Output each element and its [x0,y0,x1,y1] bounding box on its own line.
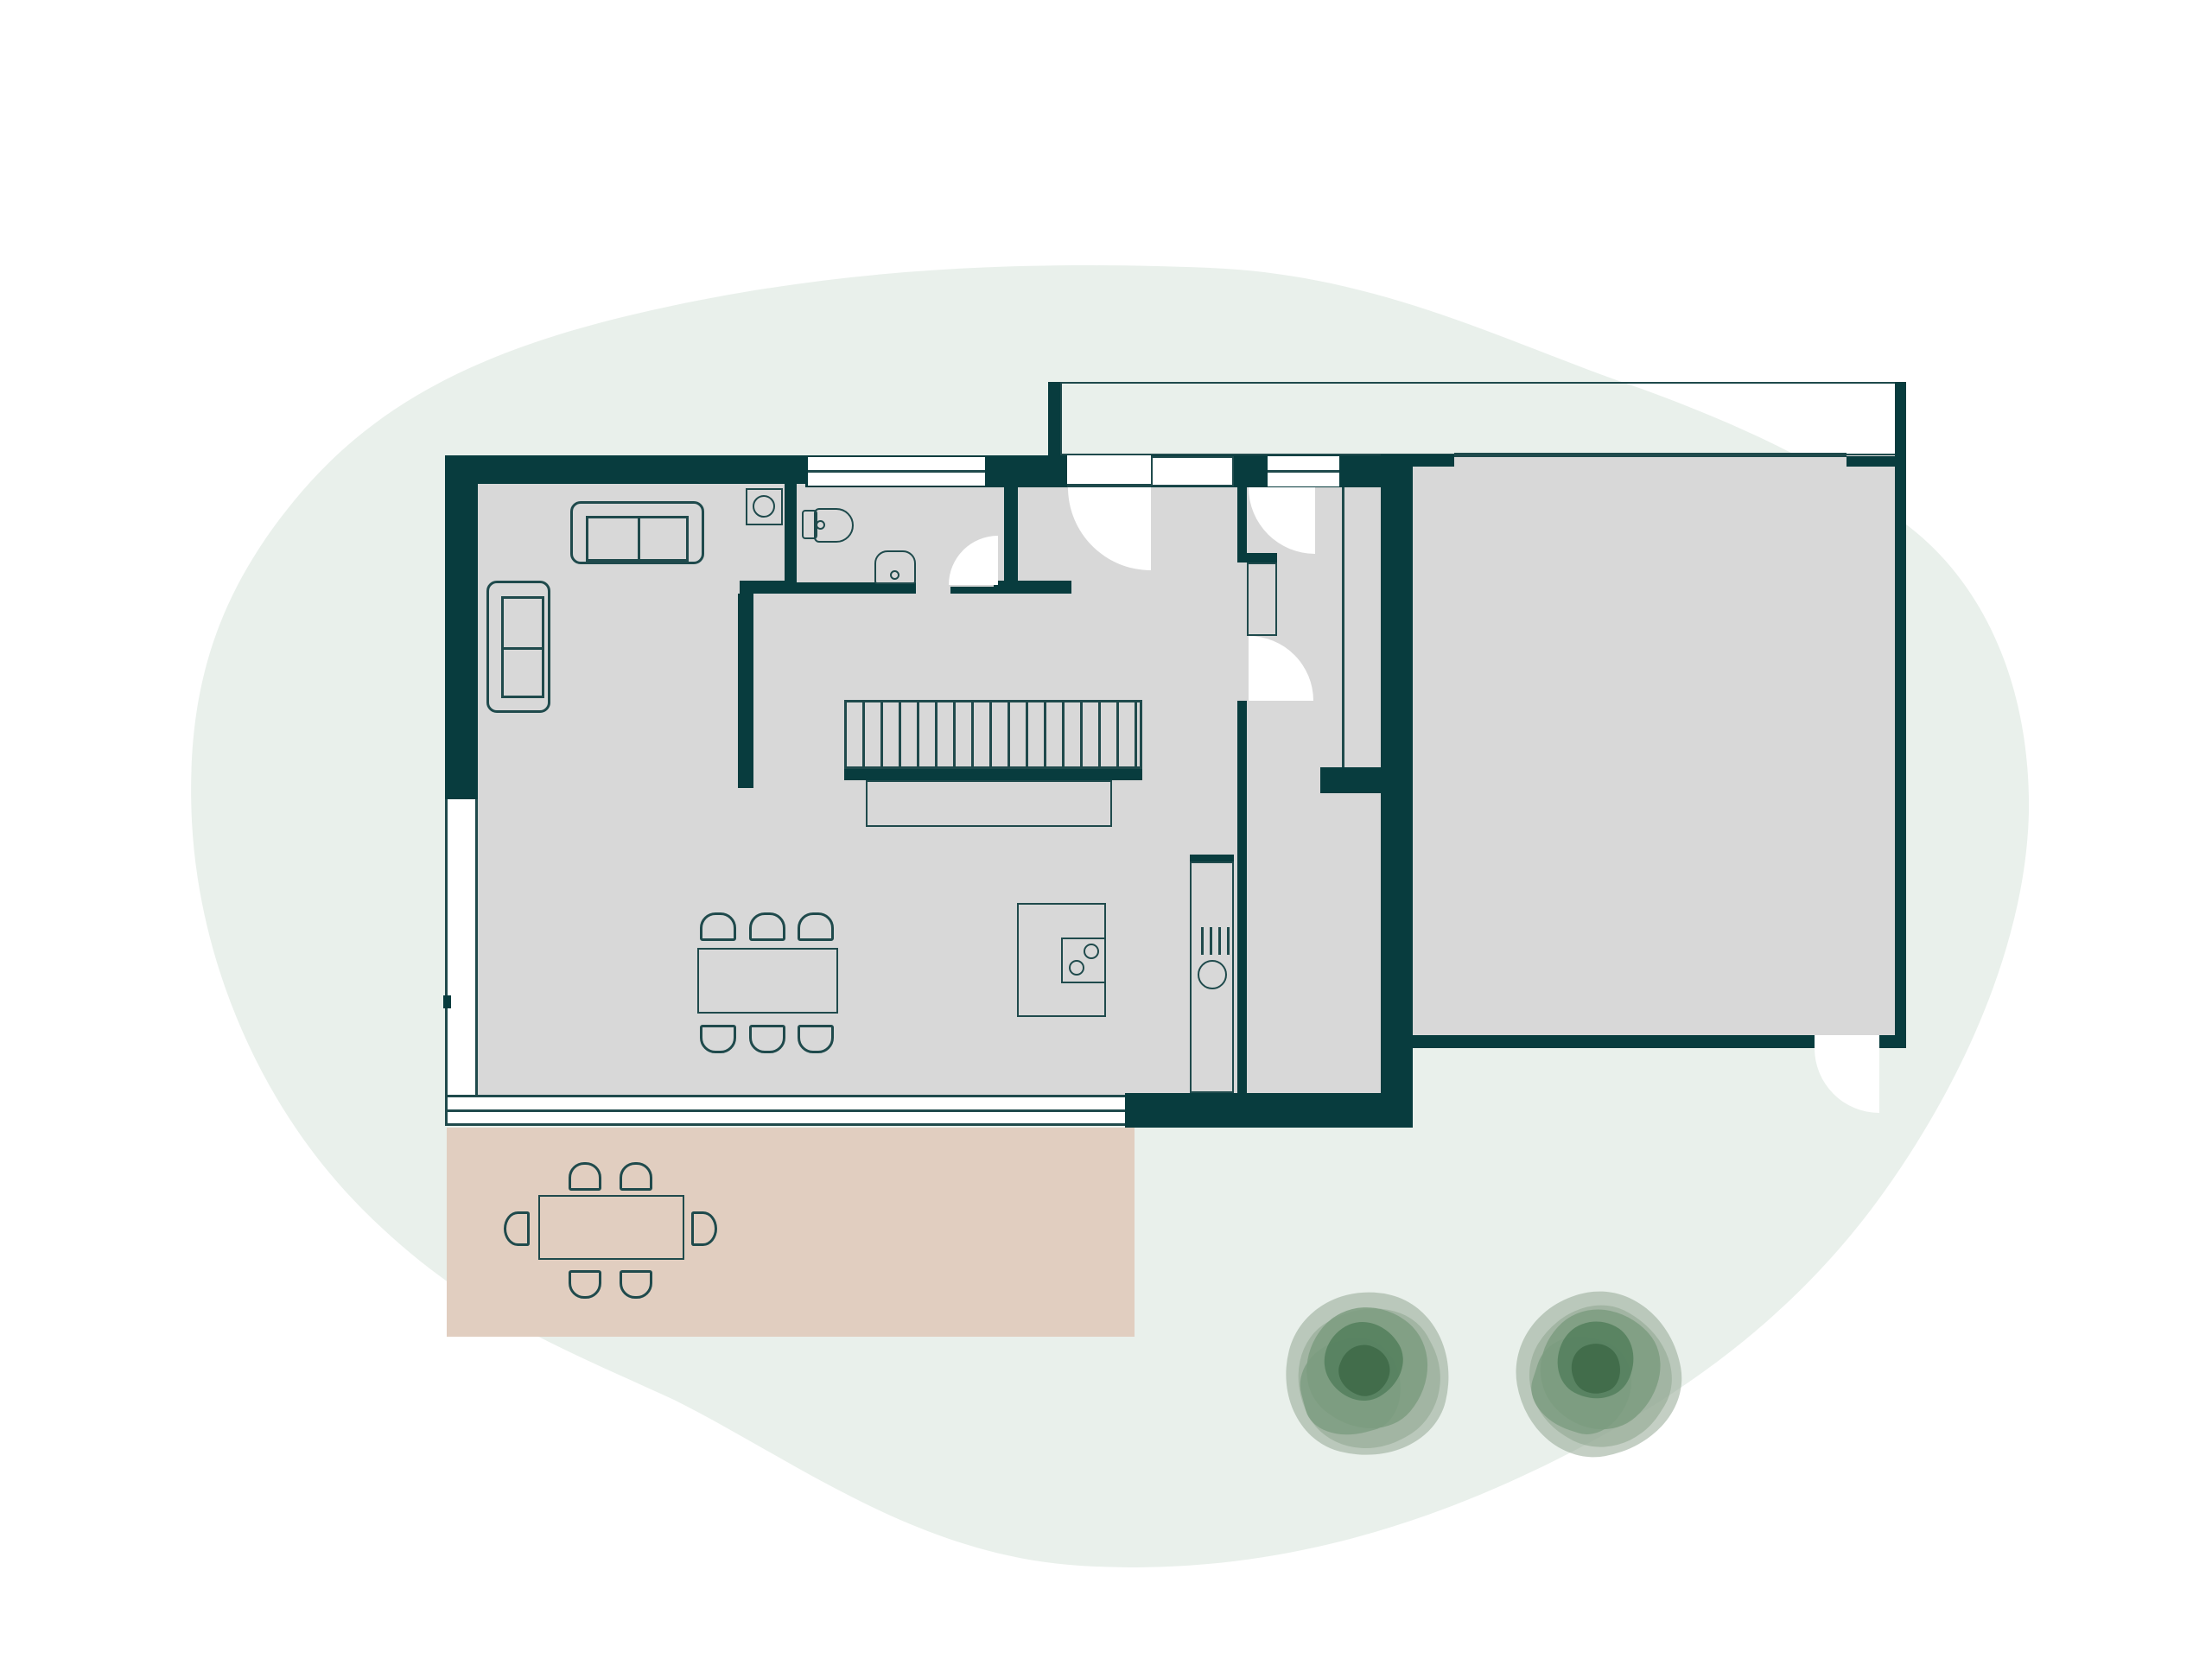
right-wing-doorway-opening [1815,1035,1879,1048]
dining-chair [700,912,736,941]
right-wing-top-stub-left [1413,454,1454,467]
kitchen-partition-wall [738,594,753,788]
understair-storage [866,780,1112,827]
cooktop-burner [1069,960,1084,976]
dining-chair [798,912,834,941]
left-window-mullion-tick [443,995,451,1008]
right-wing-right-wall [1895,382,1906,1048]
vestibule-wall-upper [1237,487,1247,563]
dining-chair [749,912,785,941]
bathroom-right-wall [1004,486,1018,585]
bathroom-left-wall [785,484,797,585]
oven-vent-lines [1201,927,1230,955]
sink-drain [890,570,899,580]
outdoor-chair [620,1162,652,1191]
oven-door-circle [1198,960,1227,989]
outdoor-table [538,1195,684,1260]
toilet [802,508,855,543]
washer-drum [753,495,775,518]
tree [1516,1292,1681,1456]
top-wall-left [445,455,808,484]
laundry-niche-stub [740,581,797,594]
outdoor-chair [569,1162,601,1191]
floor-plan-canvas [0,0,2212,1659]
dining-table [697,948,838,1014]
toilet-flush-button [816,520,825,530]
hall-cross-stub [1320,767,1381,793]
hall-dividing-wall-thick [1381,454,1413,1125]
washing-machine [746,488,783,525]
left-wall-window [445,799,478,1095]
dining-chair [749,1025,785,1053]
right-wing-top-stub-right [1847,456,1895,467]
hall-closet [1247,563,1277,636]
outdoor-chair [569,1270,601,1299]
hall-edge-line [1342,487,1344,767]
oven-column-cap [1190,855,1234,861]
right-wing-floor [1413,455,1895,1035]
south-glass-front-mullion [445,1109,1125,1112]
bottom-wall-right-of-glass [1125,1093,1413,1128]
sofa-two-seat-cushions [501,596,544,698]
bathroom-top-window-mullion [808,470,985,473]
dining-chair [798,1025,834,1053]
bathroom-sink [874,550,916,584]
tree [1286,1292,1450,1456]
cooktop-burner [1084,944,1099,959]
dining-chair [700,1025,736,1053]
cooktop [1061,938,1106,983]
front-doorway-opening [1067,455,1151,484]
outdoor-chair [504,1211,530,1246]
right-wing-top-line [1454,453,1847,457]
sofa-three-seat-cushions [586,516,689,562]
staircase-stringer [844,769,1142,780]
outdoor-chair [620,1270,652,1299]
left-wall-upper [445,455,478,799]
vestibule-wall-stub [1237,553,1277,563]
entry-fixed-glass-panel [1151,456,1234,486]
staircase-treads [844,700,1142,769]
vestibule-wall-lower [1237,701,1247,1093]
entry-sidelight-mullion [1268,470,1339,473]
porch-outline [1060,382,1905,455]
porch-pillar-left [1048,382,1060,455]
